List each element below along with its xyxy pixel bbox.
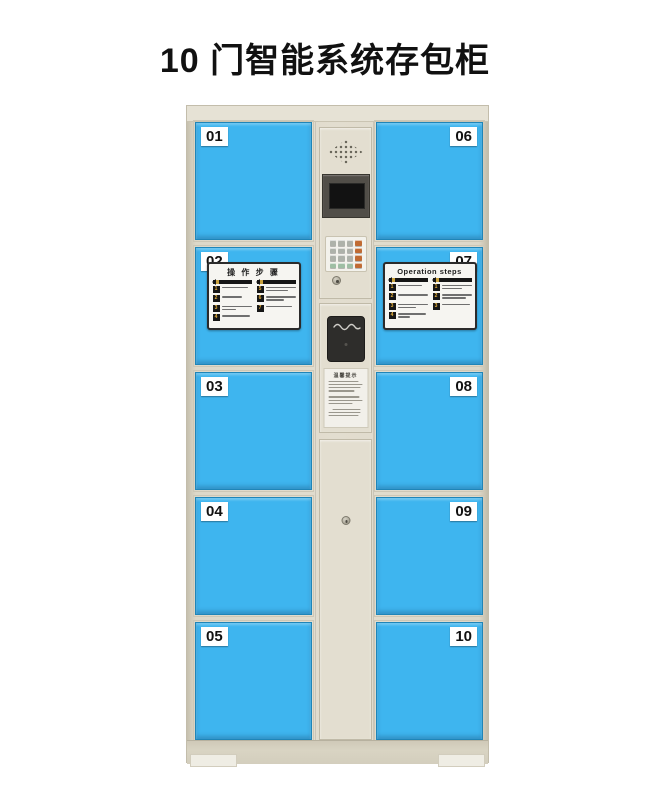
step-number-icon: 1 [213,286,220,293]
instruction-step: 3 [433,303,472,310]
scanner-wave-icon [333,322,361,332]
instruction-step: 2 [389,293,428,300]
step-number-icon: 1 [389,284,396,291]
keypad [325,236,367,272]
speaker-icon [329,140,363,164]
door-number-label: 04 [201,502,228,521]
keypad-function-key [355,263,362,269]
locker-cabinet: 01 02 操 作 步 骤 1 2 3 4 [186,105,489,763]
step-number-icon: 3 [389,303,396,310]
instruction-step: 1 [433,284,472,291]
flow-arrow-bar [213,280,252,284]
instruction-step: 1 [213,286,252,293]
control-column: 温馨提示 [315,122,374,740]
step-number-icon: 2 [433,293,440,300]
door-number-label: 10 [450,627,477,646]
door-number-label: 08 [450,377,477,396]
keypad-function-key [355,248,362,254]
door-06: 06 [376,122,483,240]
instruction-step: 4 [389,312,428,319]
instruction-step: 2 [213,295,252,302]
step-number-icon: 2 [213,295,220,302]
instruction-step: 6 [257,295,296,302]
instruction-step: 3 [213,305,252,312]
instruction-sticker-chinese: 操 作 步 骤 1 2 3 4 5 [207,262,301,330]
door-01: 01 [195,122,312,240]
retrieve-flow-column: 1 2 3 [433,278,472,322]
page-title: 10 门智能系统存包柜 [0,33,650,82]
door-number-label: 03 [201,377,228,396]
flow-arrow-bar [389,278,428,282]
door-10: 10 [376,622,483,740]
barcode-scanner-icon [327,316,365,362]
step-number-icon: 5 [257,286,264,293]
sticker-title: 操 作 步 骤 [213,267,295,278]
door-number-label: 09 [450,502,477,521]
instruction-step: 3 [389,303,428,310]
keypad-key [330,255,337,261]
keypad-key [338,255,345,261]
keypad-key [338,240,345,246]
step-number-icon: 3 [433,303,440,310]
cabinet-top-frame [187,106,488,122]
door-number-label: 05 [201,627,228,646]
scanner-dot [344,343,347,346]
right-door-column: 06 07 Operation steps 1 2 3 4 [376,122,483,740]
keypad-key [330,240,337,246]
keypad-key [338,248,345,254]
cabinet-foot-left [190,754,237,767]
flow-arrow-bar [433,278,472,282]
instruction-step: 5 [257,286,296,293]
instruction-sticker-english: Operation steps 1 2 3 4 1 [383,262,477,330]
flow-arrow-bar [257,280,296,284]
instruction-step: 4 [213,314,252,321]
keypad-key [338,263,345,269]
keypad-function-key [355,255,362,261]
keypad-key [330,248,337,254]
lower-blank-panel [319,439,372,740]
step-number-icon: 1 [433,284,440,291]
door-02: 02 操 作 步 骤 1 2 3 4 [195,247,312,365]
control-panel [319,127,372,299]
product-page: 10 门智能系统存包柜 01 02 操 作 步 骤 1 [0,0,650,790]
instruction-step: 1 [389,284,428,291]
deposit-flow-column: 1 2 3 4 [389,278,428,322]
step-number-icon: 7 [257,305,264,312]
notice-sticker: 温馨提示 [323,368,368,428]
keypad-key [330,263,337,269]
step-number-icon: 6 [257,295,264,302]
retrieve-flow-column: 5 6 7 [257,280,296,324]
cabinet-body: 01 02 操 作 步 骤 1 2 3 4 [187,122,488,740]
cabinet-foot-right [438,754,485,767]
step-number-icon: 4 [213,314,220,321]
lock-icon [341,516,350,525]
door-number-label: 01 [201,127,228,146]
deposit-flow-column: 1 2 3 4 [213,280,252,324]
keypad-function-key [355,240,362,246]
door-07: 07 Operation steps 1 2 3 4 [376,247,483,365]
notice-title: 温馨提示 [328,372,363,379]
left-door-column: 01 02 操 作 步 骤 1 2 3 4 [195,122,312,740]
lock-icon [332,276,341,285]
instruction-step: 7 [257,305,296,312]
door-03: 03 [195,372,312,490]
sticker-title: Operation steps [389,267,471,276]
keypad-key [347,255,354,261]
lcd-screen-display [329,183,365,209]
door-number-label: 06 [450,127,477,146]
door-04: 04 [195,497,312,615]
keypad-key [347,263,354,269]
step-number-icon: 2 [389,293,396,300]
step-number-icon: 4 [389,312,396,319]
keypad-key [347,240,354,246]
scanner-panel: 温馨提示 [319,303,372,433]
step-number-icon: 3 [213,305,220,312]
lcd-screen [322,174,370,218]
instruction-step: 2 [433,293,472,300]
door-05: 05 [195,622,312,740]
door-08: 08 [376,372,483,490]
door-09: 09 [376,497,483,615]
keypad-key [347,248,354,254]
